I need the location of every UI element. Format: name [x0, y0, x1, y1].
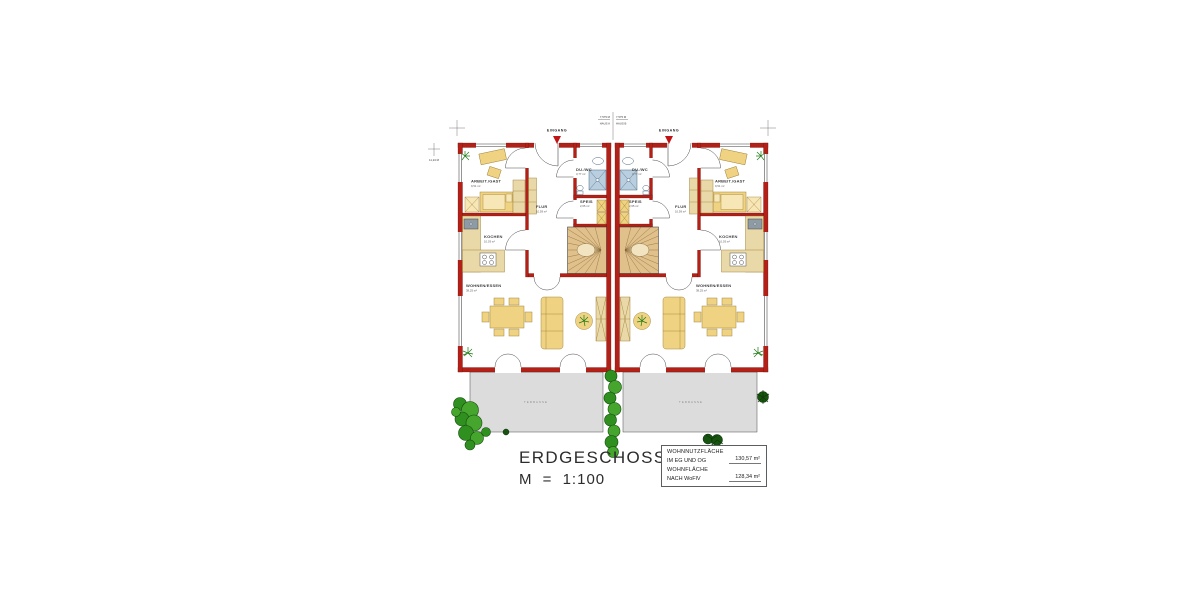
svg-text:3,77 m²: 3,77 m² [576, 172, 586, 176]
dim-height: 11,24 M [429, 158, 440, 162]
unit-right [615, 142, 769, 373]
floor-plan-page: ARBEIT./GAST 9,51 m² DU./WC 3,77 m² SPEI… [0, 0, 1200, 600]
dim-haus-b: HAUS B [616, 122, 627, 126]
svg-text:10,59 m²: 10,59 m² [536, 210, 547, 214]
dim-width-b: 7,575 M [616, 115, 627, 119]
title-block: ERDGESCHOSS M = 1:100 [519, 448, 667, 488]
svg-text:TERRASSE: TERRASSE [524, 400, 548, 404]
floor-plan-drawing: ARBEIT./GAST 9,51 m² DU./WC 3,77 m² SPEI… [420, 100, 780, 460]
room-label-kochen-left: KOCHEN [484, 234, 503, 239]
svg-text:10,03 m²: 10,03 m² [484, 240, 495, 244]
tree-right [757, 390, 769, 404]
room-label-arbeit-left: ARBEIT./GAST [471, 179, 502, 184]
svg-text:9,51 m²: 9,51 m² [715, 184, 725, 188]
room-label-kochen-right: KOCHEN [719, 234, 738, 239]
info-row-wohnnutzflaeche: WOHNNUTZFLÄCHE IM EG UND OG 130,57 m² [667, 449, 761, 464]
eingang-label-right: EINGANG [659, 129, 679, 133]
value-wohnflaeche: 128,34 m² [729, 474, 761, 482]
svg-text:10,59 m²: 10,59 m² [675, 210, 686, 214]
svg-text:TERRASSE: TERRASSE [679, 400, 703, 404]
info-row-wohnflaeche: WOHNFLÄCHE NACH WoFlV 128,34 m² [667, 467, 761, 482]
room-label-arbeit-right: ARBEIT./GAST [715, 179, 746, 184]
room-label-flur-right: FLUR [675, 204, 686, 209]
room-label-flur-left: FLUR [536, 204, 547, 209]
svg-text:10,03 m²: 10,03 m² [719, 240, 730, 244]
eingang-label-left: EINGANG [547, 129, 567, 133]
unit-left [457, 142, 611, 373]
hedge-center [604, 370, 622, 458]
room-label-wohnen-left: WOHNEN/ESSEN [466, 283, 501, 288]
area-info-box: WOHNNUTZFLÄCHE IM EG UND OG 130,57 m² WO… [661, 445, 767, 487]
plan-title: ERDGESCHOSS [519, 448, 667, 468]
svg-text:38,25 m²: 38,25 m² [696, 289, 707, 293]
svg-text:38,25 m²: 38,25 m² [466, 289, 477, 293]
svg-text:3,77 m²: 3,77 m² [632, 172, 642, 176]
svg-text:9,51 m²: 9,51 m² [471, 184, 481, 188]
dim-haus-a: HAUS A [600, 122, 610, 126]
room-label-wohnen-right: WOHNEN/ESSEN [696, 283, 731, 288]
plan-scale: M = 1:100 [519, 471, 667, 488]
svg-text:2,65 m²: 2,65 m² [580, 204, 590, 208]
value-wohnnutzflaeche: 130,57 m² [729, 456, 761, 464]
dim-width-a: 7,575 M [600, 115, 611, 119]
svg-text:2,65 m²: 2,65 m² [629, 204, 639, 208]
